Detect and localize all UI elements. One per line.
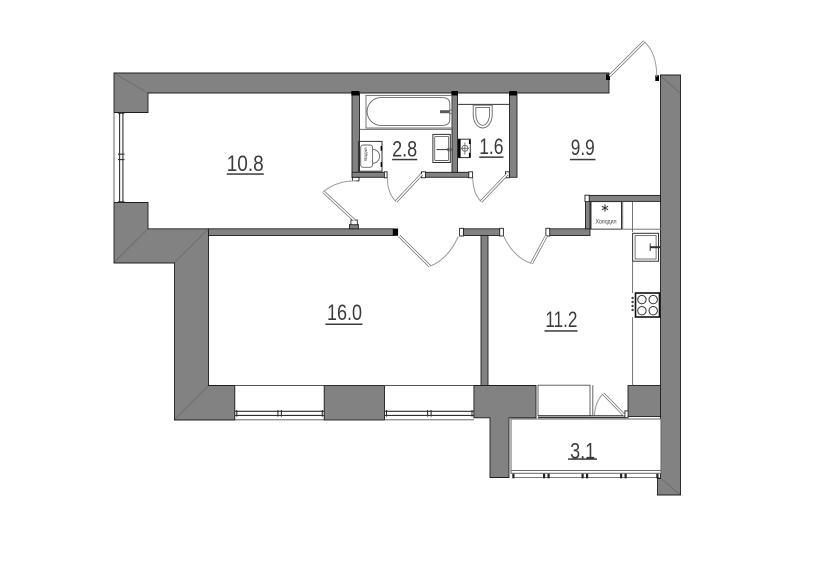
svg-text:Холодил: Холодил xyxy=(596,219,617,226)
svg-text:11.2: 11.2 xyxy=(545,307,577,332)
svg-text:16.0: 16.0 xyxy=(327,300,362,325)
svg-text:10.8: 10.8 xyxy=(227,151,264,176)
svg-text:9.9: 9.9 xyxy=(571,135,595,160)
svg-text:2.8: 2.8 xyxy=(392,137,417,162)
svg-text:1.6: 1.6 xyxy=(479,134,503,159)
svg-text:Вадня: Вадня xyxy=(363,147,368,161)
